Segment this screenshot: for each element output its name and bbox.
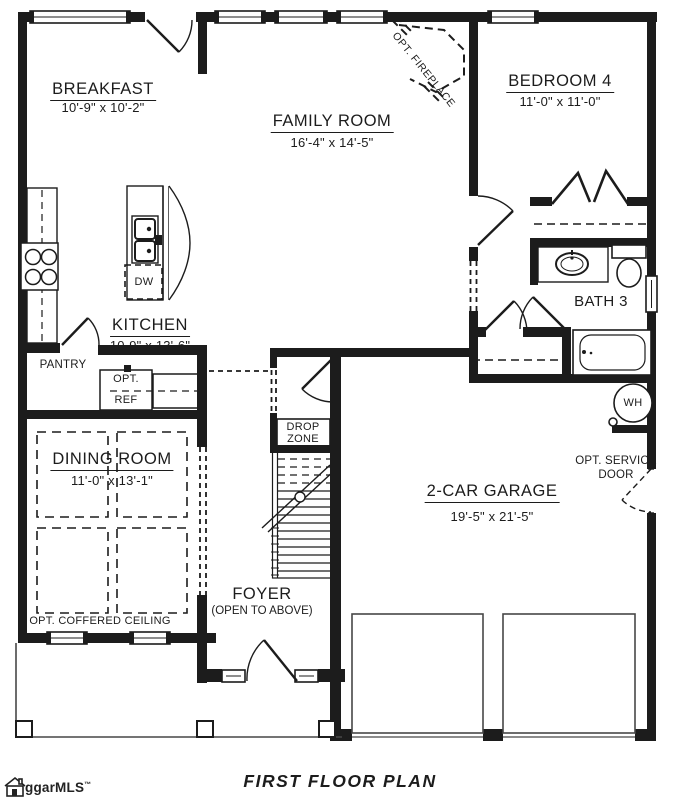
cooktop (21, 243, 58, 290)
fireplace (392, 16, 464, 102)
pantry-label: PANTRY (40, 359, 87, 371)
kitchen-label: KITCHEN (110, 316, 190, 337)
dining-room-dims: 11'-0" x 13'-1" (71, 473, 153, 488)
drop-zone-label-1: DROP (287, 421, 320, 434)
breakfast-dims: 10'-9" x 10'-2" (62, 100, 145, 115)
toilet (612, 245, 646, 287)
garage-entry-door (302, 358, 333, 402)
kitchen-sink (132, 216, 162, 263)
mls-logo: ggarMLS™ (2, 776, 91, 798)
dining-room-label: DINING ROOM (50, 450, 173, 471)
family-room-dims: 16'-4" x 14'-5" (291, 135, 374, 150)
opt-service-door-label-1: OPT. SERVICE (575, 455, 656, 467)
page-title: FIRST FLOOR PLAN (243, 771, 436, 792)
bedroom4-dims: 11'-0" x 11'-0" (519, 94, 600, 109)
opt-ref-label-2: REF (115, 394, 138, 407)
bedroom4-label: BEDROOM 4 (506, 72, 614, 93)
garage-dims: 19'-5" x 21'-5" (451, 509, 534, 524)
floor-plan-page: BREAKFAST 10'-9" x 10'-2" FAMILY ROOM 16… (0, 0, 685, 800)
garage-label: 2-CAR GARAGE (425, 482, 560, 503)
opt-coffered-ceiling-label: OPT. COFFERED CEILING (29, 615, 170, 628)
porch (16, 643, 342, 737)
logo-text: ggarMLS™ (25, 780, 91, 795)
patio-door (147, 20, 192, 52)
stairs (271, 452, 330, 578)
foyer-label: FOYER (232, 585, 291, 604)
bedroom4-door (478, 196, 513, 245)
family-room-label: FAMILY ROOM (271, 112, 394, 133)
bath3-label: BATH 3 (574, 293, 628, 310)
opt-ref-label-1: OPT. (113, 373, 139, 386)
foyer-sub-label: (OPEN TO ABOVE) (211, 605, 312, 617)
dishwasher-label: DW (135, 276, 154, 289)
pantry-door (62, 318, 99, 345)
opt-service-door-label-2: DOOR (598, 469, 633, 481)
breakfast-label: BREAKFAST (50, 80, 156, 101)
water-heater-label: WH (624, 397, 643, 410)
bathtub (573, 330, 651, 375)
bath-vanity (538, 247, 608, 282)
garage-doors (352, 614, 635, 737)
kitchen-dims: 10-9" x 13'-6" (110, 338, 190, 353)
drop-zone-label-2: ZONE (287, 433, 319, 446)
